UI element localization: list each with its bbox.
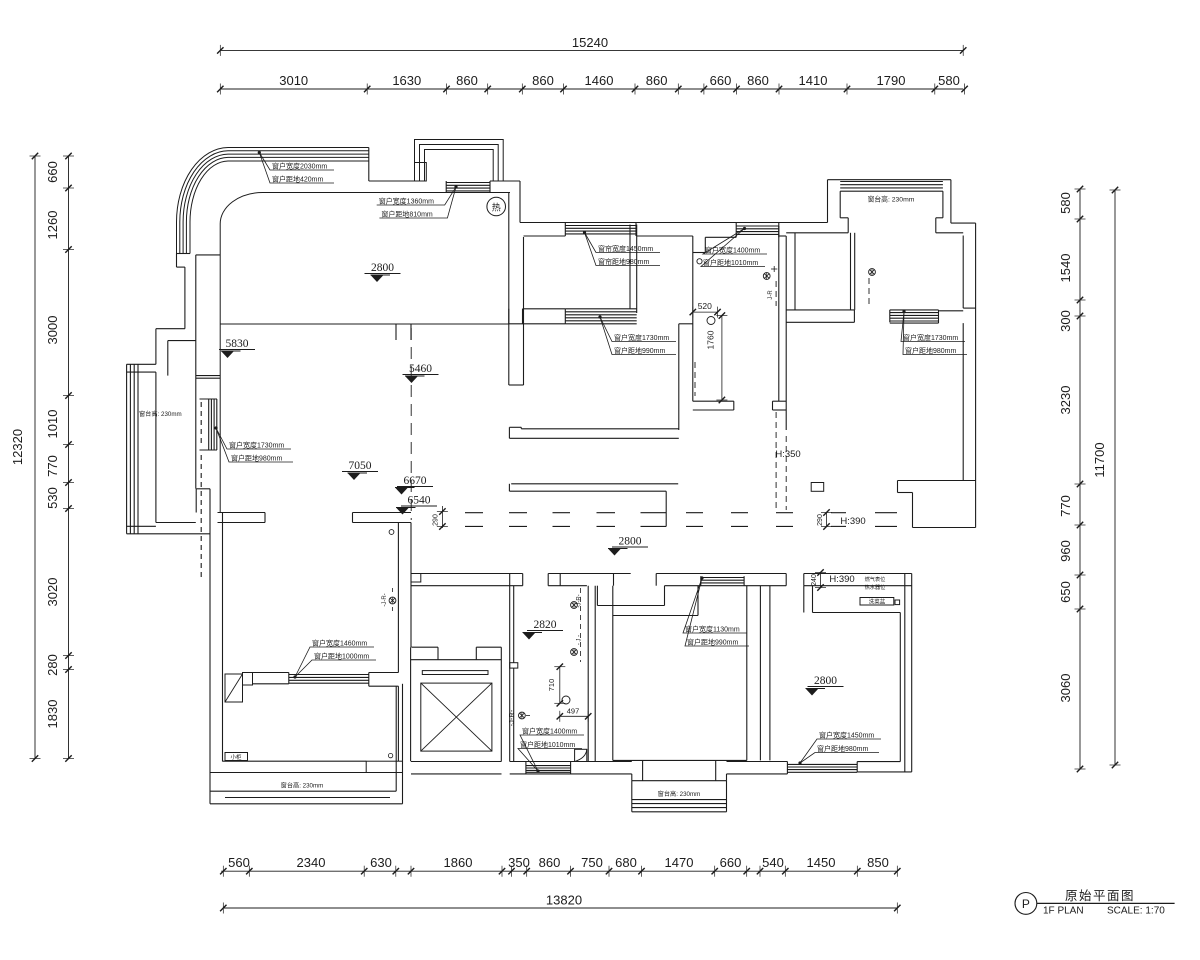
svg-text:-J-R-: -J-R- <box>507 709 516 726</box>
svg-text:2800: 2800 <box>814 675 837 687</box>
svg-text:770: 770 <box>45 455 60 477</box>
svg-text:窗帘距地980mm: 窗帘距地980mm <box>598 257 650 266</box>
svg-text:H:350: H:350 <box>775 449 800 460</box>
svg-text:窗户距地980mm: 窗户距地980mm <box>905 346 957 355</box>
svg-text:680: 680 <box>615 855 637 870</box>
svg-text:窗户宽度1400mm: 窗户宽度1400mm <box>522 727 577 736</box>
svg-text:290: 290 <box>817 514 824 526</box>
svg-text:窗台高: 230mm: 窗台高: 230mm <box>868 195 915 204</box>
svg-text:1630: 1630 <box>392 73 421 88</box>
svg-text:2340: 2340 <box>297 855 326 870</box>
svg-text:窗户距地420mm: 窗户距地420mm <box>272 175 324 184</box>
svg-text:1540: 1540 <box>1058 254 1073 283</box>
svg-text:窗台高: 230mm: 窗台高: 230mm <box>658 790 701 798</box>
svg-text:560: 560 <box>228 855 250 870</box>
svg-text:热水器位: 热水器位 <box>865 583 886 591</box>
svg-text:1450: 1450 <box>807 855 836 870</box>
svg-text:1860: 1860 <box>444 855 473 870</box>
svg-text:燃气表位: 燃气表位 <box>865 575 886 583</box>
svg-text:860: 860 <box>747 73 769 88</box>
svg-text:窗户宽度2030mm: 窗户宽度2030mm <box>272 162 327 171</box>
svg-text:5830: 5830 <box>226 338 249 350</box>
svg-text:窗户宽度1460mm: 窗户宽度1460mm <box>312 639 367 648</box>
svg-text:J-R: J-R <box>768 290 774 300</box>
svg-text:窗户距地990mm: 窗户距地990mm <box>614 346 666 355</box>
svg-text:3000: 3000 <box>45 316 60 345</box>
svg-text:1470: 1470 <box>665 855 694 870</box>
svg-text:520: 520 <box>698 301 712 311</box>
svg-text:3060: 3060 <box>1058 674 1073 703</box>
svg-text:5460: 5460 <box>409 363 432 375</box>
svg-text:530: 530 <box>45 487 60 509</box>
svg-text:3020: 3020 <box>45 578 60 607</box>
svg-text:窗户距地980mm: 窗户距地980mm <box>817 744 869 753</box>
svg-text:860: 860 <box>532 73 554 88</box>
svg-text:小柜: 小柜 <box>230 753 242 761</box>
svg-text:580: 580 <box>938 73 960 88</box>
svg-text:660: 660 <box>720 855 742 870</box>
svg-text:770: 770 <box>1058 495 1073 517</box>
svg-text:窗户距地990mm: 窗户距地990mm <box>687 638 739 647</box>
svg-text:窗户距地1000mm: 窗户距地1000mm <box>314 652 369 661</box>
svg-text:窗户宽度1730mm: 窗户宽度1730mm <box>903 333 958 342</box>
svg-text:H:390: H:390 <box>829 574 854 585</box>
svg-text:-J-R-: -J-R- <box>382 593 388 606</box>
svg-text:- J -: - J - <box>577 635 583 645</box>
svg-text:497: 497 <box>567 707 580 716</box>
svg-text:300: 300 <box>1058 310 1073 332</box>
svg-text:窗户宽度1130mm: 窗户宽度1130mm <box>685 625 740 634</box>
svg-text:1760: 1760 <box>706 330 716 349</box>
svg-text:860: 860 <box>539 855 561 870</box>
svg-text:窗户距地810mm: 窗户距地810mm <box>381 210 433 219</box>
svg-text:1830: 1830 <box>45 700 60 729</box>
svg-text:290: 290 <box>433 514 440 526</box>
svg-text:1F PLAN: 1F PLAN <box>1043 906 1084 917</box>
svg-text:1410: 1410 <box>799 73 828 88</box>
svg-text:350: 350 <box>508 855 530 870</box>
svg-text:1460: 1460 <box>585 73 614 88</box>
svg-text:13820: 13820 <box>546 893 582 908</box>
svg-text:710: 710 <box>547 679 556 692</box>
svg-text:2800: 2800 <box>371 262 394 274</box>
svg-text:850: 850 <box>867 855 889 870</box>
svg-text:3230: 3230 <box>1058 386 1073 415</box>
svg-text:7050: 7050 <box>349 460 372 472</box>
svg-text:窗台高: 230mm: 窗台高: 230mm <box>139 410 182 418</box>
svg-text:860: 860 <box>646 73 668 88</box>
svg-text:窗户宽度1450mm: 窗户宽度1450mm <box>819 731 874 740</box>
svg-text:3010: 3010 <box>279 73 308 88</box>
svg-text:原始平面图: 原始平面图 <box>1065 889 1135 903</box>
svg-text:1790: 1790 <box>877 73 906 88</box>
svg-text:660: 660 <box>45 161 60 183</box>
svg-text:1010: 1010 <box>45 410 60 439</box>
svg-text:SCALE: 1:70: SCALE: 1:70 <box>1107 906 1165 917</box>
svg-text:12320: 12320 <box>10 429 25 465</box>
svg-text:窗户宽度1730mm: 窗户宽度1730mm <box>614 333 669 342</box>
svg-text:窗户宽度1730mm: 窗户宽度1730mm <box>229 441 284 450</box>
svg-text:窗帘宽度1450mm: 窗帘宽度1450mm <box>598 244 653 253</box>
svg-text:650: 650 <box>1058 581 1073 603</box>
svg-text:580: 580 <box>1058 192 1073 214</box>
svg-text:-J-R-: -J-R- <box>577 594 583 607</box>
svg-text:660: 660 <box>710 73 732 88</box>
svg-text:窗户宽度1360mm: 窗户宽度1360mm <box>379 197 434 206</box>
svg-text:窗台高: 230mm: 窗台高: 230mm <box>281 782 324 790</box>
svg-text:630: 630 <box>370 855 392 870</box>
svg-text:窗户距地980mm: 窗户距地980mm <box>231 454 283 463</box>
svg-text:窗户宽度1400mm: 窗户宽度1400mm <box>705 246 760 255</box>
svg-text:2820: 2820 <box>534 619 557 631</box>
svg-text:960: 960 <box>1058 540 1073 562</box>
svg-text:1260: 1260 <box>45 211 60 240</box>
svg-text:540: 540 <box>762 855 784 870</box>
svg-text:15240: 15240 <box>572 35 608 50</box>
svg-text:热: 热 <box>492 202 501 213</box>
svg-text:6540: 6540 <box>408 495 431 507</box>
svg-text:750: 750 <box>581 855 603 870</box>
svg-text:6670: 6670 <box>404 475 427 487</box>
svg-text:240: 240 <box>811 574 818 586</box>
svg-text:窗户距地1010mm: 窗户距地1010mm <box>520 740 575 749</box>
svg-text:洗菜盆: 洗菜盆 <box>869 598 886 606</box>
svg-text:860: 860 <box>456 73 478 88</box>
svg-text:2800: 2800 <box>619 536 642 548</box>
svg-text:P: P <box>1022 897 1030 911</box>
svg-text:H:390: H:390 <box>840 516 865 527</box>
svg-text:280: 280 <box>45 654 60 676</box>
svg-text:窗户距地1010mm: 窗户距地1010mm <box>703 258 758 267</box>
svg-text:11700: 11700 <box>1092 442 1107 477</box>
